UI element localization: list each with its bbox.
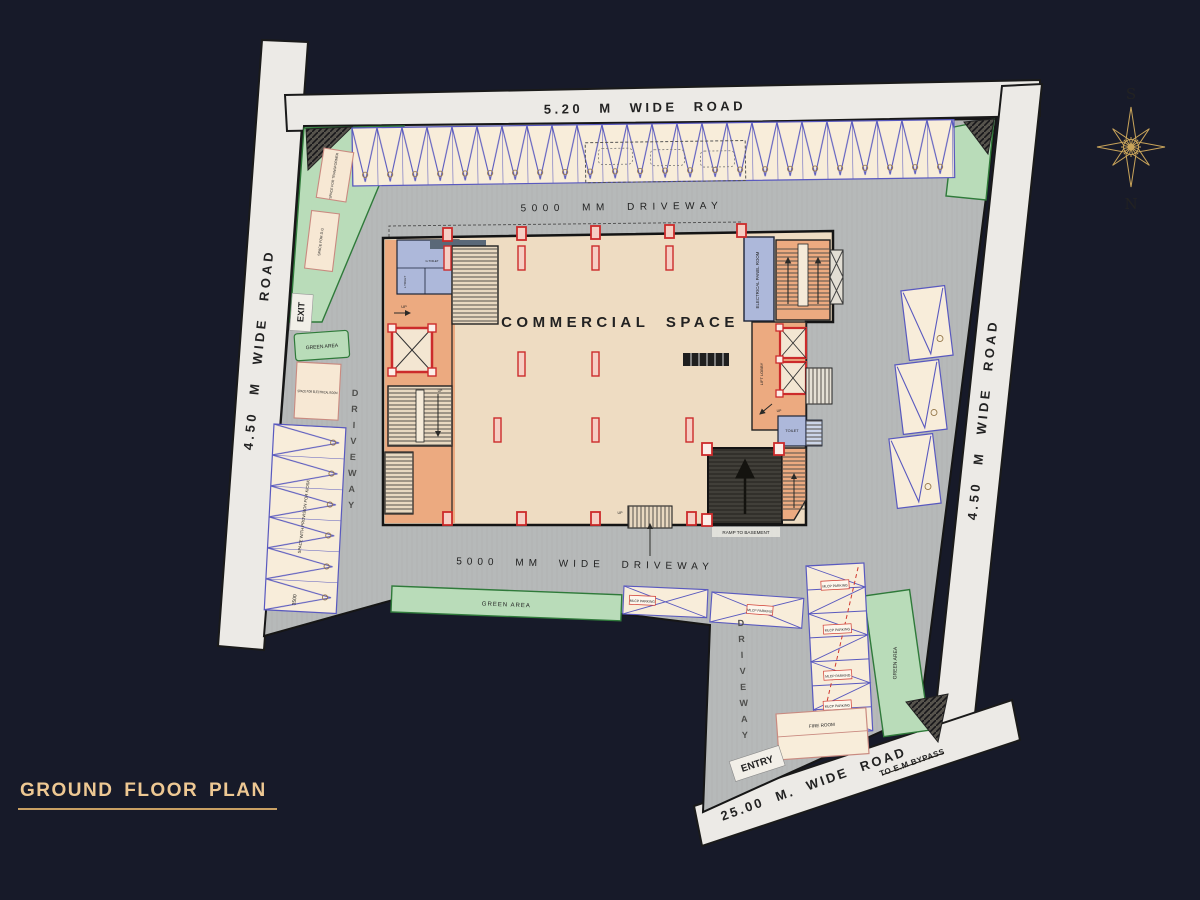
exit-tag: EXIT: [290, 293, 314, 331]
stairs-b: UP: [388, 386, 452, 446]
parking-tag-3: MLCP PARKING: [824, 670, 852, 680]
building: G.TOILET L.TOILET UP UP: [383, 222, 843, 556]
ramp-to-basement: [708, 448, 782, 524]
stairs-d-external: [806, 368, 832, 404]
lift-2: [780, 328, 806, 358]
parking-strip-top: [352, 120, 955, 186]
g-toilet-label: G.TOILET: [425, 259, 438, 263]
electrical-room-box: SPACE FOR ELECTRICAL ROOM: [294, 362, 341, 420]
compass-south-label: S: [1126, 85, 1136, 103]
up-label-1: UP: [401, 304, 407, 309]
lift-lobby: LIFT LOBBY UP: [752, 322, 806, 430]
electrical-panel-room-label: ELECTRICAL PANEL ROOM: [755, 251, 760, 308]
parking-tag-2: MLCP PARKING: [823, 624, 851, 634]
lift-3: [780, 362, 806, 394]
bay-box-1: MLCP PARKING: [623, 586, 708, 618]
toilet-label: TOILET: [785, 429, 799, 433]
lobby-up-label: UP: [777, 409, 782, 413]
stairs-external-blue: [806, 420, 822, 446]
stairs-c: [776, 240, 830, 320]
compass-north-label: N: [1124, 195, 1137, 213]
dimension-3500: 3500: [291, 594, 298, 606]
stairs-a: [452, 246, 498, 324]
stall-2: [895, 360, 947, 435]
stall-1: [901, 286, 953, 361]
bay-box-2: MLCP PARKING: [710, 592, 804, 628]
louver-panel: [830, 250, 843, 304]
fire-room: FIRE ROOM: [776, 708, 869, 760]
stairs-e: [782, 448, 806, 520]
commercial-space-label: COMMERCIAL SPACE: [501, 314, 739, 331]
parking-tag-1: MLCP PARKING: [821, 580, 849, 590]
lift-lobby-label: LIFT LOBBY: [759, 362, 764, 385]
floor-plan-canvas: 5.20 M WIDE ROAD 4.50 M WIDE ROAD 4.50 M…: [0, 0, 1200, 900]
l-toilet-label: L.TOILET: [403, 276, 407, 289]
ramp-label: RAMP TO BASEMENT: [722, 530, 769, 535]
site-plan-drawing: 5.20 M WIDE ROAD 4.50 M WIDE ROAD 4.50 M…: [0, 0, 1200, 900]
compass-rose: S N: [1094, 85, 1168, 213]
lift-1: [388, 324, 436, 376]
exit-label: EXIT: [295, 301, 306, 322]
stairs-g: [385, 452, 413, 514]
shaft-louver-bar: [683, 353, 729, 366]
svg-text:UP: UP: [438, 389, 443, 393]
green-area-left: GREEN AREA: [294, 330, 350, 361]
green-area-bottom-right-label: GREEN AREA: [892, 646, 899, 679]
parking-strip-left: SPACE WITH PROVISION FOR KIOSK: [264, 424, 346, 614]
stall-3: [889, 434, 941, 509]
up-label-stairs-f: UP: [618, 511, 624, 515]
page-title: GROUND FLOOR PLAN: [18, 780, 277, 810]
